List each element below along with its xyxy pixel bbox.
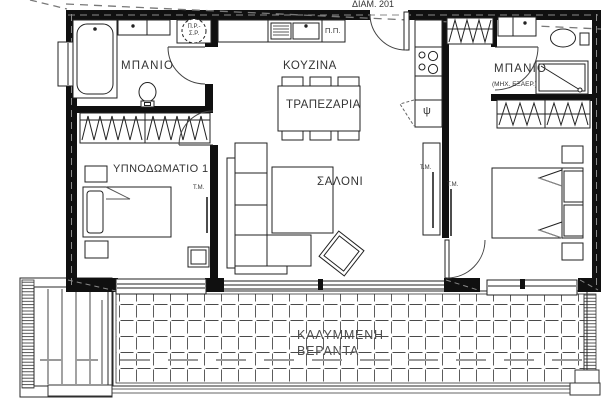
fridge-label: ψ — [423, 106, 431, 117]
dishwasher-label: Π.Π. — [325, 27, 341, 35]
wall-bottom-sw — [66, 278, 118, 292]
living-furniture — [227, 143, 440, 276]
window-bedroom1-sill — [116, 279, 206, 294]
sofa-base — [235, 266, 287, 274]
bed-double-pillow-2 — [564, 205, 583, 236]
slider-living-mullion — [318, 279, 323, 290]
vanity-bath2-faucet — [524, 22, 526, 24]
nightstand — [562, 146, 583, 163]
chair — [282, 77, 303, 86]
cooktop-burner-2 — [419, 64, 425, 70]
column-bottom-2 — [444, 278, 480, 292]
room-label-dining: ΤΡΑΠΕΖΑΡΙΑ — [286, 100, 361, 112]
nightstand — [85, 241, 108, 258]
veranda — [66, 291, 600, 395]
tv-cabinet — [423, 143, 440, 235]
armchair — [319, 231, 364, 276]
fridge-door-swing — [400, 100, 414, 126]
planter — [20, 278, 112, 397]
apartment-title: ΔΙΑΜ. 201 — [352, 0, 394, 9]
kitchen-cabinet-right-2 — [415, 76, 442, 100]
planter-slats — [48, 289, 102, 384]
bedroom1-furniture — [80, 113, 210, 267]
cooktop — [415, 47, 442, 76]
vanity-bath1 — [118, 20, 170, 35]
bed-single-pillow — [87, 191, 103, 233]
planter-inner — [34, 287, 108, 386]
bedroom2-door-leaf — [445, 240, 449, 278]
vanity-bath1-faucet — [132, 25, 134, 27]
room-label-living: ΣΑΛΟΝΙ — [317, 177, 363, 189]
toilet-bath1-bowl — [139, 83, 156, 102]
entrance-door-leaf — [404, 12, 409, 50]
toilet-bath2-cistern — [580, 33, 589, 45]
floor-plan: ΔΙΑΜ. 201 ΜΠΑΝΙΟ ΚΟΥΖΙΝΑ ΤΡΑΠΕΖΑΡΙΑ ΣΑΛΟ… — [0, 0, 601, 413]
planter-hatch-strip — [22, 280, 34, 388]
armchair-inner — [324, 236, 359, 271]
kitchen-cabinet-top — [218, 20, 268, 42]
chair — [310, 131, 331, 140]
cooktop-burner-3 — [428, 51, 437, 60]
wall-bedroom1-east — [210, 145, 218, 278]
toilet-bath2-bowl — [551, 29, 576, 47]
chair — [338, 77, 359, 86]
doors — [168, 12, 538, 278]
washer-dryer-label-bottom: Σ.Ρ. — [181, 31, 207, 37]
bedroom1-unit-inner — [191, 250, 206, 264]
sofa-armrest — [227, 158, 235, 268]
bed-double-pillow-1 — [564, 171, 583, 202]
fancoil-label-bedroom2: Τ.Μ. — [447, 182, 458, 188]
fancoil-label-bedroom1: Τ.Μ. — [193, 185, 204, 191]
room-label-kitchen: ΚΟΥΖΙΝΑ — [283, 61, 337, 73]
chair — [282, 131, 303, 140]
cooktop-burner-1 — [419, 52, 425, 58]
wall-bath1-east-lower — [205, 84, 213, 108]
kitchen-cabinet-right-1 — [415, 20, 442, 47]
sofa-chaise — [267, 235, 311, 266]
planter-base-strip — [48, 385, 112, 396]
cooktop-burner-4 — [428, 64, 437, 73]
vanity-bath2 — [498, 17, 536, 36]
veranda-corner-step-1 — [575, 370, 599, 383]
room-label-bathroom-right: ΜΠΑΝΙΟ — [494, 64, 547, 76]
bedroom2-furniture — [451, 146, 583, 260]
veranda-right-hatch-strip — [584, 294, 596, 378]
wall-center — [442, 20, 449, 238]
bedroom2-door-arc — [447, 240, 485, 278]
nightstand — [85, 166, 107, 182]
room-label-bathroom-right-note: (ΜΗΧ. ΕΞΑΕΡ.) — [492, 82, 537, 89]
room-label-veranda-line1: ΚΑΛΥΜΜΕΝΗ — [297, 329, 384, 342]
washer-dryer-label-top: Π.Ρ.- — [181, 24, 207, 30]
fancoil-label-living: Τ.Μ. — [420, 165, 431, 171]
chair — [310, 77, 331, 86]
room-label-bedroom1: ΥΠΝΟΔΩΜΑΤΙΟ 1 — [113, 164, 209, 175]
kitchen-faucet — [305, 25, 307, 27]
column-bottom-1 — [205, 278, 224, 292]
roof-dash-corner — [30, 0, 67, 9]
room-label-bathroom-left: ΜΠΑΝΙΟ — [121, 61, 174, 73]
nightstand — [562, 243, 583, 260]
kitchen-sink-drainer — [271, 23, 291, 39]
shower-drain — [578, 88, 582, 92]
veranda-corner-step-2 — [570, 383, 600, 395]
toilet-bath1-button — [145, 103, 151, 106]
room-label-veranda-line2: ΒΕΡΑΝΤΑ — [297, 345, 359, 358]
window-bedroom2-mullion — [520, 279, 525, 289]
bathtub-drain — [94, 28, 97, 31]
window-bedroom2-sill — [487, 280, 577, 295]
bathtub-inner — [77, 24, 113, 94]
chair — [338, 131, 359, 140]
